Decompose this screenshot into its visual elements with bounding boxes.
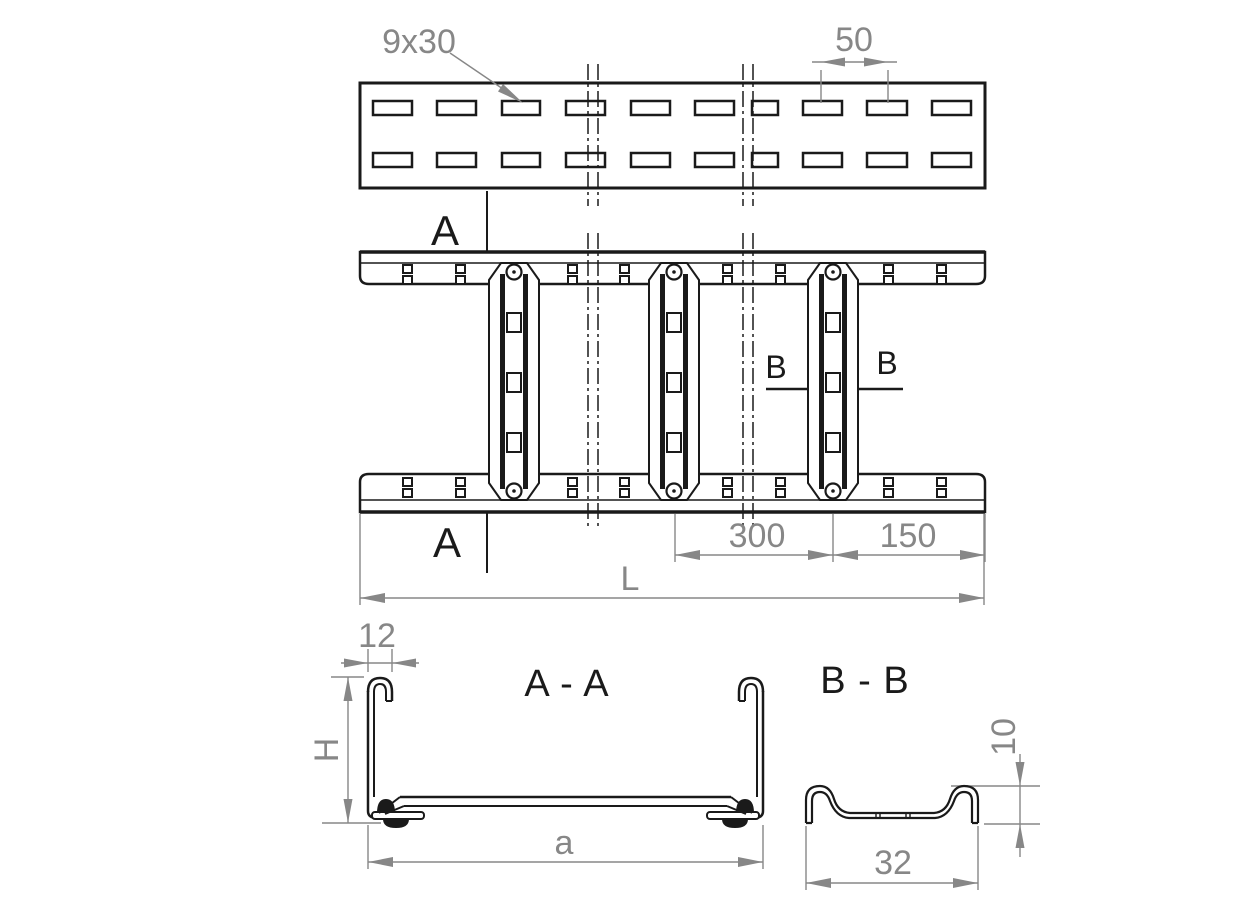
flange-dim-label: 12 <box>358 619 396 653</box>
section-a-label-top: A <box>431 210 459 252</box>
side-rail-outline <box>360 83 985 188</box>
rung-width-dim-label: 32 <box>874 846 912 880</box>
section-aa-title: A - A <box>524 665 609 703</box>
rung <box>489 263 539 500</box>
height-dim-label: H <box>310 738 344 763</box>
section-b-label-right: B <box>876 347 897 379</box>
plan-view-drawing <box>360 252 985 512</box>
rung <box>649 263 699 500</box>
section-a-label-bottom: A <box>433 522 461 564</box>
rung <box>808 263 858 500</box>
width-dim-label: a <box>555 826 574 860</box>
section-bb-drawing <box>806 786 978 823</box>
side-view-drawing <box>360 83 985 188</box>
rung-spacing-dim-label: 300 <box>729 519 786 553</box>
pitch-dim-label: 50 <box>835 23 873 57</box>
section-bb-title: B - B <box>820 662 909 700</box>
length-dim-label: L <box>621 562 640 596</box>
technical-drawing-cable-ladder: 9x30 50 A A B B 300 150 L A - A 12 H a B… <box>0 0 1242 908</box>
rung-height-dim-label: 10 <box>987 718 1021 756</box>
slot-size-label: 9x30 <box>382 25 456 59</box>
drawing-linework <box>0 0 1242 908</box>
section-b-label-left: B <box>765 351 786 383</box>
end-spacing-dim-label: 150 <box>880 519 937 553</box>
